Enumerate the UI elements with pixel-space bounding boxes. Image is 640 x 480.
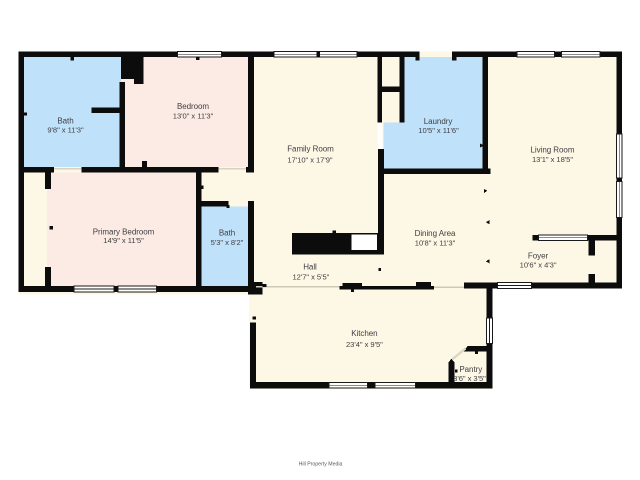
svg-text:Foyer: Foyer [528,252,549,261]
svg-text:14'9" x 11'5": 14'9" x 11'5" [103,236,144,245]
svg-text:Kitchen: Kitchen [351,329,377,338]
svg-text:Bath: Bath [57,117,73,126]
svg-text:5'3" x 8'2": 5'3" x 8'2" [211,238,244,247]
svg-text:10'8" x 11'3": 10'8" x 11'3" [415,239,456,248]
svg-text:Pantry: Pantry [459,365,482,374]
svg-text:Laundry: Laundry [424,117,453,126]
svg-text:9'8" x 11'3": 9'8" x 11'3" [47,126,84,135]
svg-text:13'0" x 11'3": 13'0" x 11'3" [173,112,214,121]
svg-text:Hall: Hall [303,262,317,271]
svg-text:13'1" x 18'5": 13'1" x 18'5" [532,155,573,164]
svg-text:17'10" x 17'9": 17'10" x 17'9" [287,156,333,165]
svg-text:3'6" x 3'5": 3'6" x 3'5" [453,374,486,383]
svg-text:Primary Bedroom: Primary Bedroom [93,227,155,236]
svg-text:Dining Area: Dining Area [415,229,456,238]
svg-text:12'7" x 5'5": 12'7" x 5'5" [292,272,329,281]
svg-text:Living Room: Living Room [531,146,575,155]
svg-text:23'4" x 9'5": 23'4" x 9'5" [346,340,383,349]
svg-text:10'6" x 4'3": 10'6" x 4'3" [520,260,557,269]
svg-text:10'5" x 11'6": 10'5" x 11'6" [418,126,459,135]
svg-text:Bedroom: Bedroom [177,102,209,111]
svg-text:Hill Property Media: Hill Property Media [299,461,343,467]
svg-text:Bath: Bath [219,229,235,238]
svg-text:Family Room: Family Room [287,144,334,153]
